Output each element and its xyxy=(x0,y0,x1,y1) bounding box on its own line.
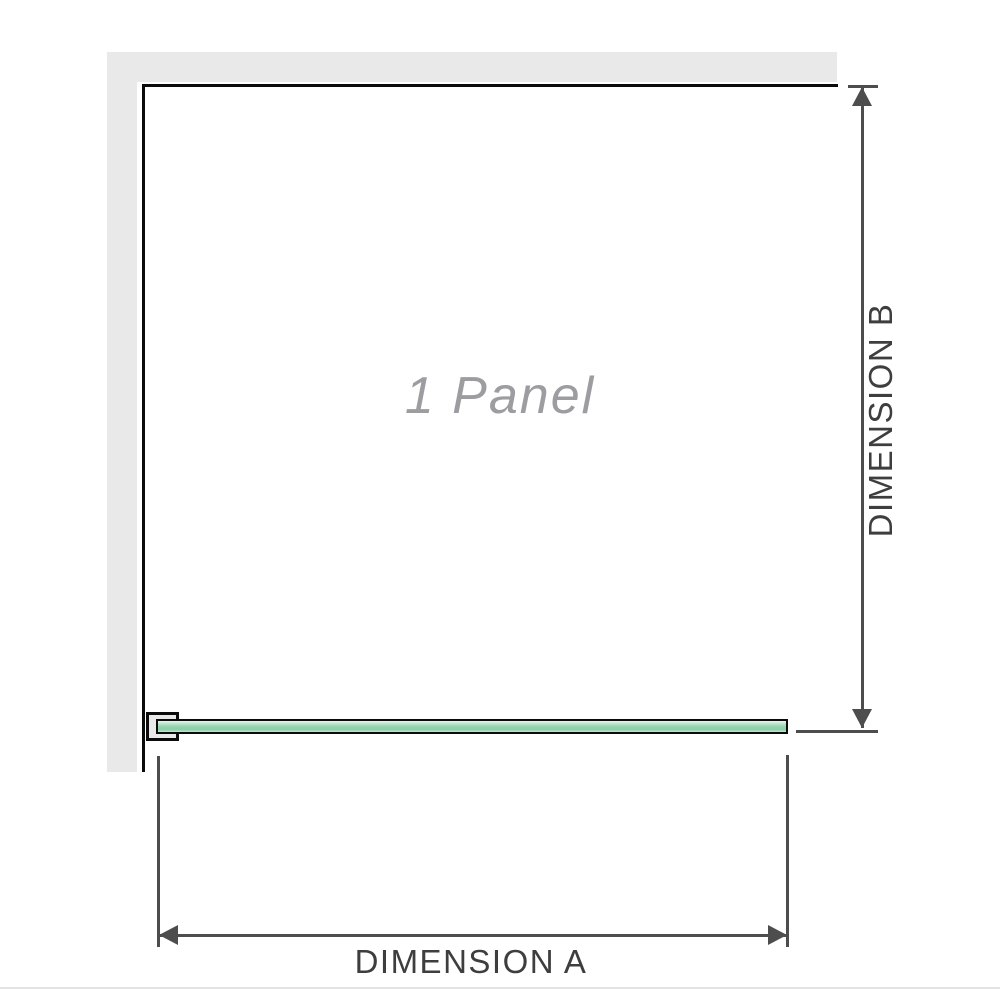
dimension-a-left-extender xyxy=(157,756,160,947)
dimension-a-arrow-right-icon xyxy=(768,925,787,945)
wall-left xyxy=(107,52,137,772)
dimension-a-arrow-left-icon xyxy=(159,925,178,945)
panel-area-left-border xyxy=(142,84,145,772)
dimension-b-label: DIMENSION B xyxy=(863,220,899,620)
shower-panel-diagram: 1 Panel DIMENSION B DIMENSION A xyxy=(0,0,1000,1000)
dimension-a-right-extender xyxy=(786,755,789,947)
dimension-a-line xyxy=(160,934,787,937)
dimension-b-bottom-tick xyxy=(796,730,878,733)
dimension-a-label: DIMENSION A xyxy=(331,944,611,980)
wall-top xyxy=(107,52,837,82)
panel-area-top-border xyxy=(142,84,838,87)
panel-count-label: 1 Panel xyxy=(300,366,700,426)
bottom-divider xyxy=(0,987,1000,989)
dimension-b-arrow-up-icon xyxy=(852,87,872,106)
glass-panel xyxy=(156,719,788,734)
dimension-b-arrow-down-icon xyxy=(852,709,872,728)
